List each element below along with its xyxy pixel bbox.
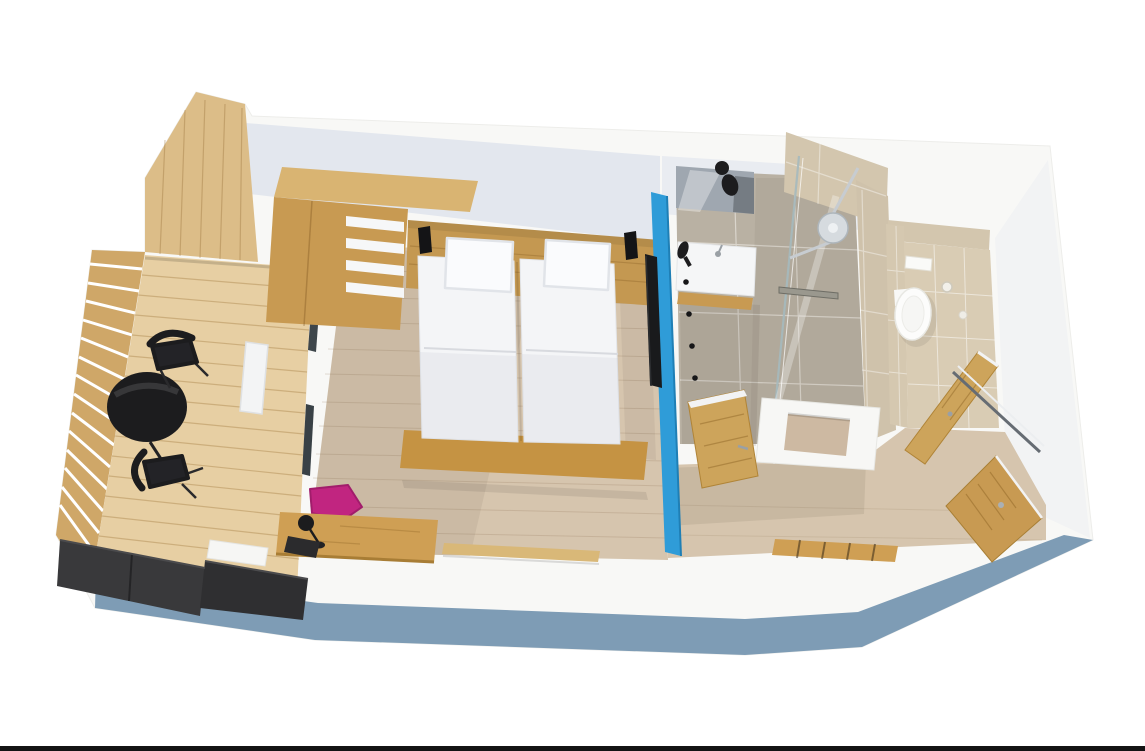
bathroom [675,132,896,488]
door-handle [948,412,953,417]
pillow-left [445,238,513,292]
wall-accessory [959,311,967,319]
washbasin [676,242,756,310]
twin-beds [400,238,648,500]
storage-niche-box [756,398,880,470]
pillow-right [544,240,610,290]
flush-plate [905,256,932,271]
floorplan-page [0,0,1145,751]
reading-lamp-left [418,226,432,254]
reading-lamp-right [624,231,638,260]
toilet-roll-holder [942,282,952,292]
bottom-divider-bar [0,746,1145,751]
door-handle [998,502,1004,508]
floorplan-render [0,0,1145,751]
mirror [676,166,754,214]
